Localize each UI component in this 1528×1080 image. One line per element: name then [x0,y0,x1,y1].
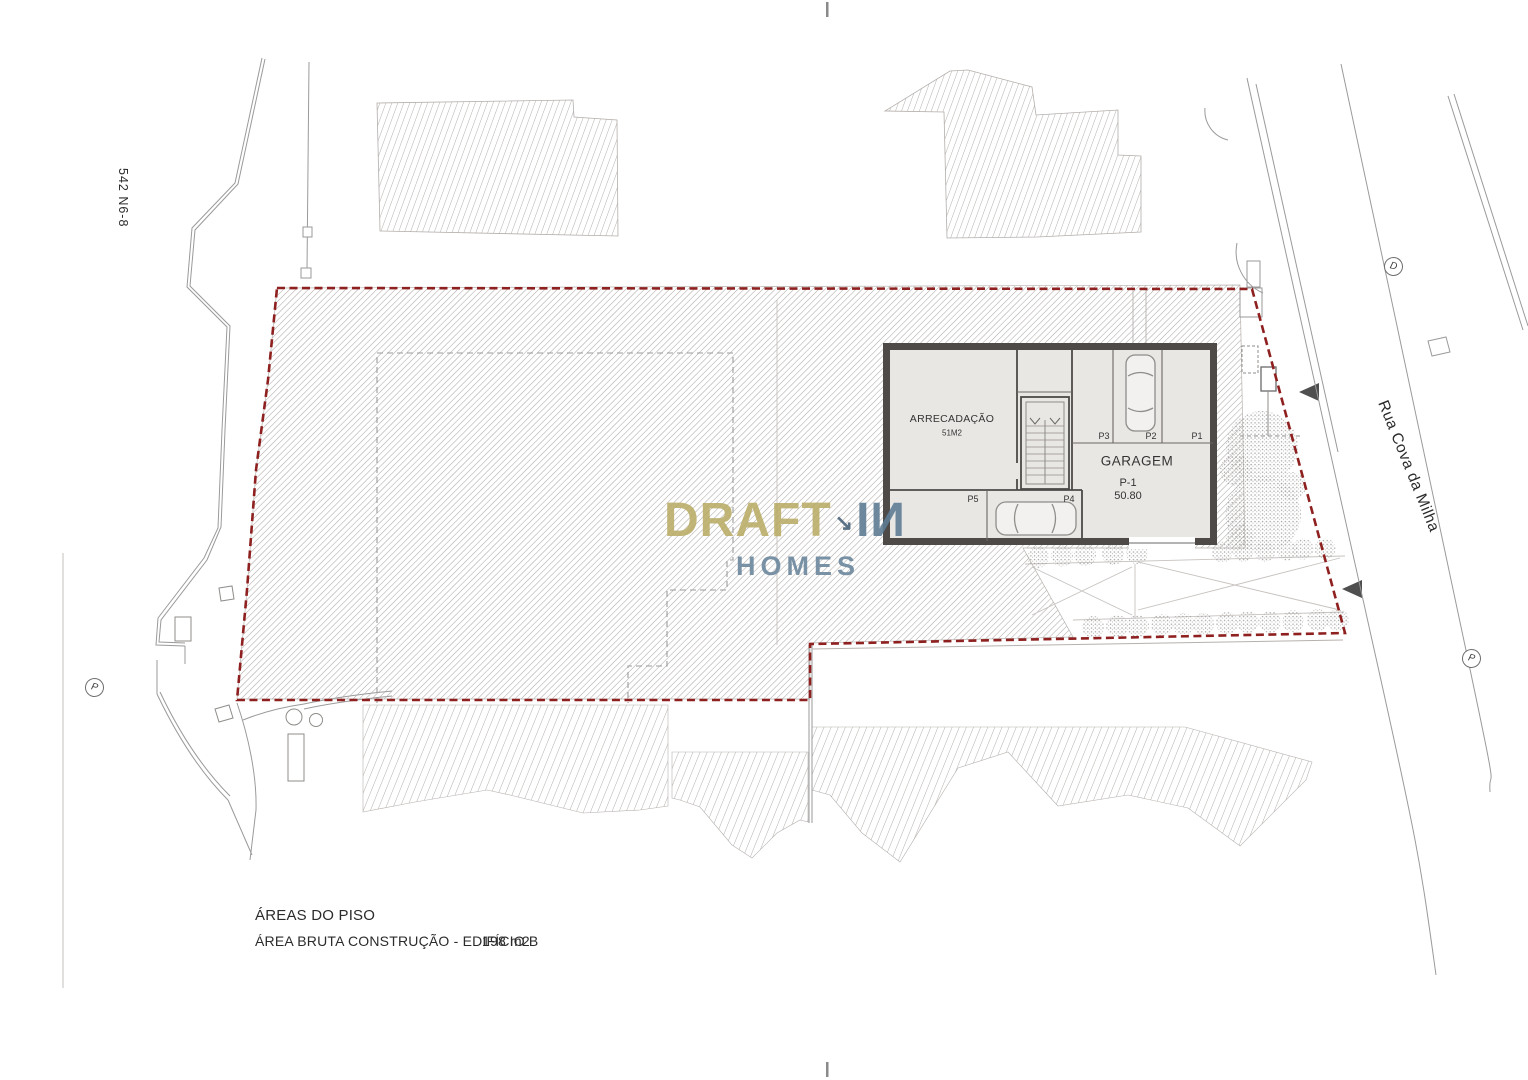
logo-word-in: IИ [856,497,906,545]
survey-line [301,62,312,278]
site-plan-sheet: 542 N6-8 Rua Cova da Milha ARRECADAÇÃO 5… [0,0,1528,1080]
building-edificio-b [887,347,1214,550]
gross-area-value: 198 m2 [482,933,530,949]
garage-level-label: P-1 [1119,477,1136,489]
fold-mark-bottom [826,1062,829,1077]
terrain-hatch-a [363,705,668,813]
stall-label-p4: P4 [1063,494,1074,504]
marker-d-letter: D [1389,260,1399,272]
storage-room-label: ARRECADAÇÃO [910,413,994,425]
terrain-hatch-b [672,752,808,858]
logo-word-homes: HOMES [664,551,860,582]
garage-label: GARAGEM [1101,454,1174,469]
stall-label-p3: P3 [1098,431,1109,441]
areas-title: ÁREAS DO PISO [255,907,375,924]
neighbor-building-north [885,70,1141,238]
marker-p-letter: P [1467,652,1476,664]
stall-label-p5: P5 [967,494,978,504]
neighbor-building-west [377,100,618,236]
logo-wordmark: DRAFT ↘ IИ [664,497,906,545]
stall-label-p2: P2 [1145,431,1156,441]
storage-area-label: 51M2 [942,429,962,438]
arrow-down-right-icon: ↘ [835,512,853,534]
fold-mark-top [826,2,829,17]
car-stall-p2 [1126,355,1155,431]
driveway-paving-lines [1025,556,1345,620]
parcel-ref-label: 542 N6-8 [116,168,130,227]
logo-word-draft: DRAFT [664,497,832,545]
draftin-homes-logo: DRAFT ↘ IИ HOMES [664,497,906,582]
staircase [1021,397,1069,489]
terrain-hatch-c [812,727,1312,862]
car-stall-p4 [996,502,1076,535]
entrance-arrow-icon [1299,383,1319,401]
marker-p-letter: P [90,681,99,693]
trees [1220,411,1306,552]
road-square-marker [1428,337,1450,356]
garage-area-label: 50.80 [1114,490,1142,502]
stall-label-p1: P1 [1191,431,1202,441]
